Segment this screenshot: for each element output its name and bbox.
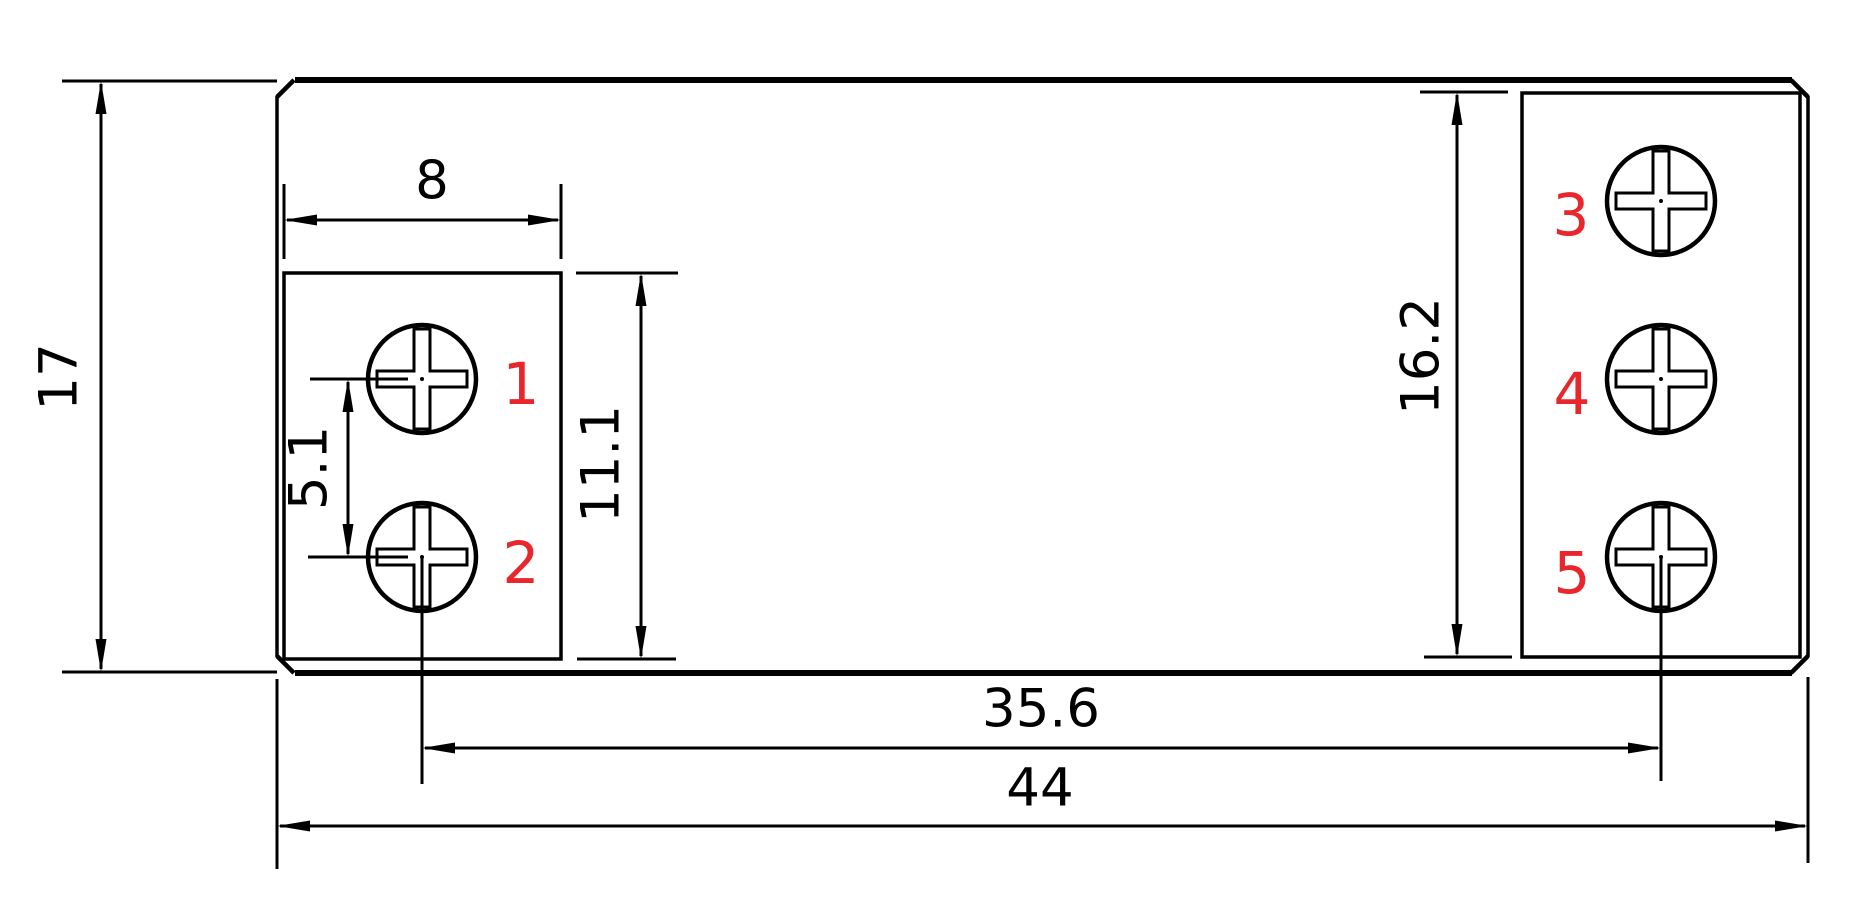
technical-drawing-canvas: 17 8 5.1 11.1 16.2 [0,0,1866,901]
terminal-label-4: 4 [1554,360,1591,428]
dim-overall-width-text: 44 [1006,758,1073,819]
dim-right-pocket-height-text: 16.2 [1391,297,1452,415]
dim-overall-height-text: 17 [29,343,90,410]
terminal-label-3: 3 [1553,181,1590,249]
screw-center-dot [420,377,424,381]
arrowhead-up [636,273,647,306]
arrowhead-up [96,81,107,114]
arrowhead-right [1775,821,1808,832]
dim-overall-height: 17 [29,81,278,672]
terminal-label-5: 5 [1554,539,1591,607]
arrowhead-down [636,626,647,659]
dim-screw-pitch-text: 5.1 [279,426,340,510]
arrowhead-down [96,639,107,672]
body-chamfer-top-left [277,80,294,97]
arrowhead-down [343,524,354,557]
terminal-label-2: 2 [503,529,540,597]
arrowhead-left [422,743,455,754]
dim-screw-span: 35.6 [422,679,1661,754]
dim-screw-span-text: 35.6 [982,679,1100,740]
screw-terminal-4 [1607,325,1715,433]
terminal-label-1: 1 [503,350,540,418]
dim-left-pocket-height: 11.1 [571,273,679,659]
dim-pocket-width: 8 [284,151,561,260]
arrowhead-left [284,215,317,226]
dim-right-pocket-height: 16.2 [1391,92,1513,657]
screw-center-dot [1659,199,1663,203]
arrowhead-down [1452,624,1463,657]
arrowhead-up [1452,92,1463,125]
arrowhead-right [1628,743,1661,754]
screw-center-dot [1659,377,1663,381]
dim-left-pocket-height-text: 11.1 [571,405,632,523]
arrowhead-left [277,821,310,832]
screw-terminal-3 [1607,147,1715,255]
dimension-drawing: 17 8 5.1 11.1 16.2 [0,0,1866,901]
dim-pocket-width-text: 8 [415,151,449,212]
arrowhead-up [343,379,354,412]
arrowhead-right [528,215,561,226]
